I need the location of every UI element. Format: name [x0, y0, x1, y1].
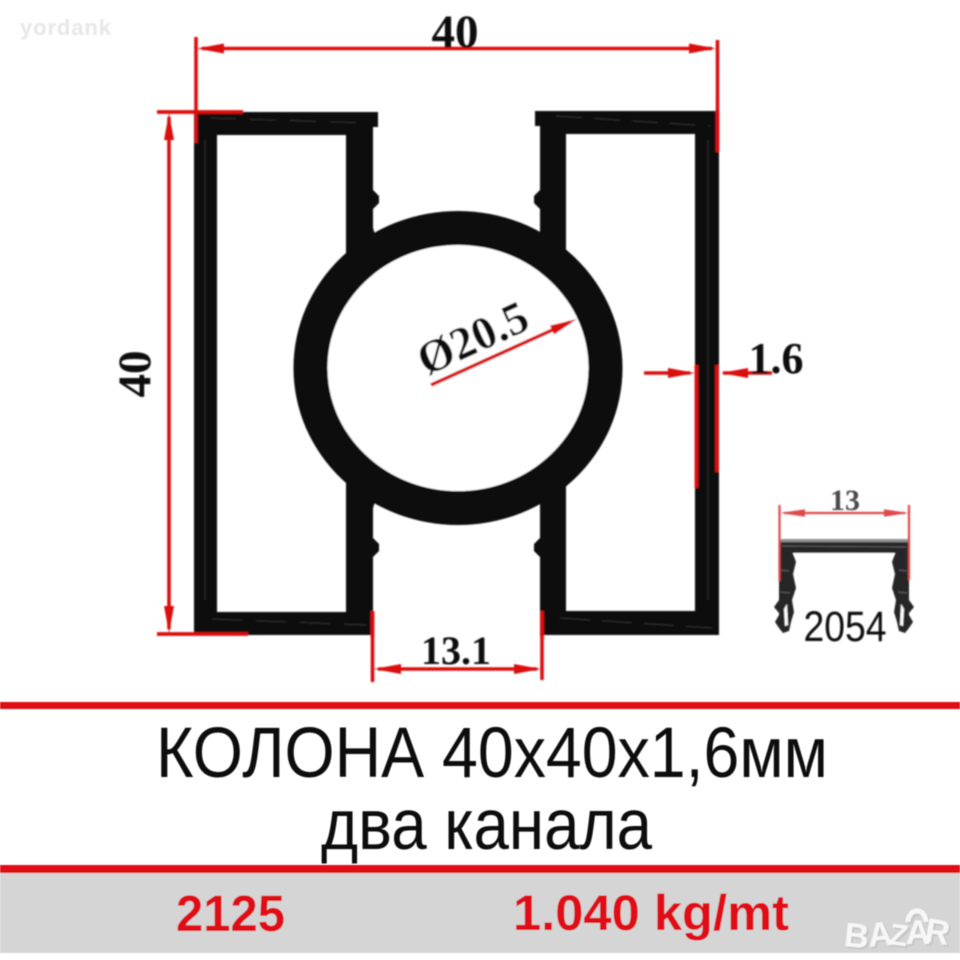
svg-text:2125: 2125 — [176, 885, 285, 942]
svg-text:1.6: 1.6 — [749, 334, 804, 383]
svg-text:два канала: два канала — [321, 786, 652, 865]
svg-text:2054: 2054 — [804, 603, 887, 651]
svg-text:40: 40 — [432, 6, 479, 58]
svg-text:КОЛОНА 40x40x1,6мм: КОЛОНА 40x40x1,6мм — [156, 714, 828, 793]
svg-text:13: 13 — [830, 484, 860, 517]
svg-text:yordank: yordank — [20, 15, 112, 40]
svg-text:40: 40 — [109, 351, 161, 398]
svg-text:1.040 kg/mt: 1.040 kg/mt — [513, 885, 789, 941]
svg-text:13.1: 13.1 — [421, 628, 491, 673]
